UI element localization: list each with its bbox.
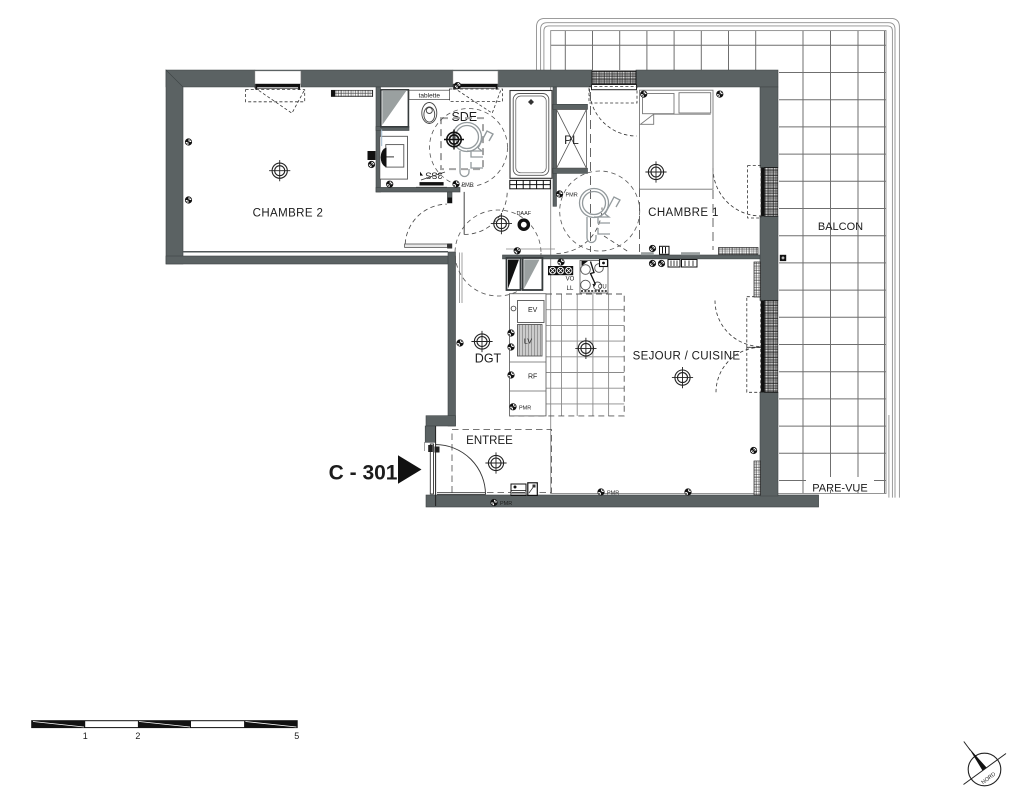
svg-text:LL: LL: [567, 286, 574, 292]
svg-text:C - 301: C - 301: [329, 461, 398, 484]
svg-text:DGT: DGT: [475, 352, 502, 366]
svg-text:CHAMBRE 1: CHAMBRE 1: [648, 207, 719, 219]
svg-text:PL: PL: [564, 133, 579, 147]
svg-text:SEJOUR / CUISINE: SEJOUR / CUISINE: [633, 351, 741, 363]
svg-text:PMR: PMR: [566, 193, 578, 199]
svg-text:1: 1: [83, 731, 88, 741]
svg-text:PMR: PMR: [500, 501, 512, 507]
svg-text:RF: RF: [528, 374, 537, 381]
svg-text:VO: VO: [566, 277, 575, 283]
svg-text:BALCON: BALCON: [818, 221, 863, 233]
svg-text:tablette: tablette: [419, 93, 441, 100]
svg-text:PMR: PMR: [462, 183, 474, 189]
svg-text:CU: CU: [598, 285, 607, 291]
svg-text:ENTREE: ENTREE: [466, 435, 513, 447]
svg-text:PMR: PMR: [607, 491, 619, 497]
svg-text:LV: LV: [524, 339, 532, 346]
svg-text:PARE-VUE: PARE-VUE: [812, 483, 867, 495]
svg-text:CHAMBRE 2: CHAMBRE 2: [253, 208, 324, 220]
svg-text:2: 2: [135, 731, 140, 741]
svg-text:DAAF: DAAF: [516, 211, 531, 217]
svg-text:5: 5: [294, 731, 299, 741]
svg-text:PMR: PMR: [519, 406, 531, 412]
svg-text:SDE: SDE: [451, 110, 477, 124]
svg-text:EV: EV: [528, 307, 538, 314]
